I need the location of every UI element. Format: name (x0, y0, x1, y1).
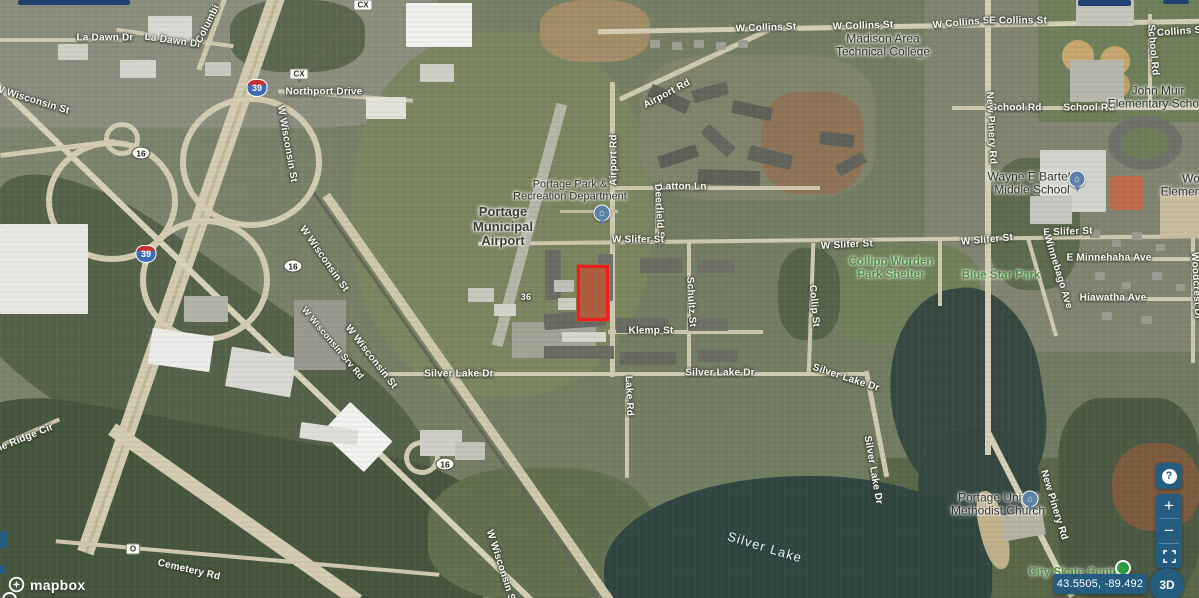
help-icon: ? (1162, 469, 1177, 484)
fullscreen-button[interactable] (1156, 544, 1182, 568)
zoom-controls: + − (1156, 494, 1182, 568)
mapbox-logo-icon (8, 576, 25, 593)
ui-fragment (1163, 0, 1189, 4)
ui-fragment (0, 531, 8, 548)
3d-toggle-button[interactable]: 3D (1150, 568, 1184, 598)
ui-fragment (1078, 0, 1131, 6)
ui-fragment (0, 565, 6, 574)
zoom-out-button[interactable]: − (1156, 519, 1182, 543)
fullscreen-icon (1163, 550, 1176, 563)
map-canvas[interactable]: La Dawn DrLa Dawn DrColumbiW Wisconsin S… (0, 0, 1199, 598)
zoom-in-button[interactable]: + (1156, 494, 1182, 518)
mapbox-logo-text: mapbox (30, 577, 85, 593)
ui-fragment (18, 0, 130, 5)
coordinates-badge: 43.5505, -89.492 (1053, 574, 1147, 594)
mapbox-logo[interactable]: mapbox (8, 576, 85, 593)
help-button[interactable]: ? (1156, 463, 1182, 489)
